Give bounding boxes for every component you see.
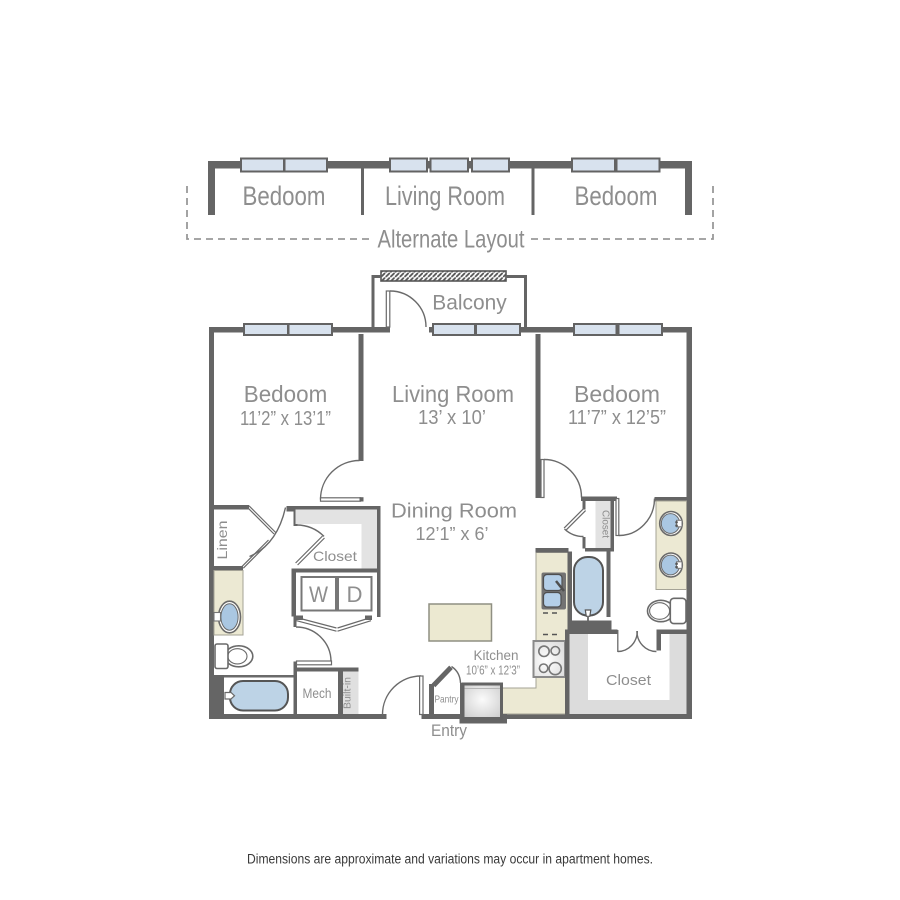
- svg-text:Alternate Layout: Alternate Layout: [378, 226, 525, 254]
- svg-text:Bedoom: Bedoom: [243, 181, 326, 211]
- svg-text:11’2” x 13’1”: 11’2” x 13’1”: [240, 407, 331, 430]
- svg-text:Closet: Closet: [600, 510, 612, 538]
- svg-text:11’7” x 12’5”: 11’7” x 12’5”: [568, 406, 666, 429]
- svg-text:Pantry: Pantry: [435, 694, 460, 706]
- svg-text:Closet: Closet: [313, 548, 357, 564]
- svg-text:13’ x 10’: 13’ x 10’: [418, 406, 486, 429]
- svg-text:Living Room: Living Room: [392, 381, 514, 407]
- svg-text:12’1” x 6’: 12’1” x 6’: [416, 523, 489, 544]
- svg-text:Bedoom: Bedoom: [575, 181, 658, 211]
- svg-text:W: W: [309, 582, 328, 607]
- svg-text:Entry: Entry: [431, 721, 467, 740]
- svg-text:Living Room: Living Room: [385, 181, 505, 211]
- svg-text:Dimensions are approximate and: Dimensions are approximate and variation…: [247, 852, 653, 867]
- svg-text:Kitchen: Kitchen: [474, 647, 519, 663]
- svg-text:Built-in: Built-in: [342, 677, 354, 709]
- svg-text:Bedoom: Bedoom: [244, 381, 328, 407]
- svg-text:Balcony: Balcony: [432, 292, 507, 315]
- svg-text:D: D: [347, 582, 363, 607]
- svg-text:Mech: Mech: [303, 686, 332, 701]
- svg-text:10’6” x 12’3”: 10’6” x 12’3”: [466, 664, 520, 678]
- svg-text:Bedoom: Bedoom: [574, 381, 660, 407]
- svg-text:Linen: Linen: [215, 521, 230, 560]
- svg-text:Dining Room: Dining Room: [391, 500, 517, 523]
- svg-text:Closet: Closet: [606, 672, 652, 689]
